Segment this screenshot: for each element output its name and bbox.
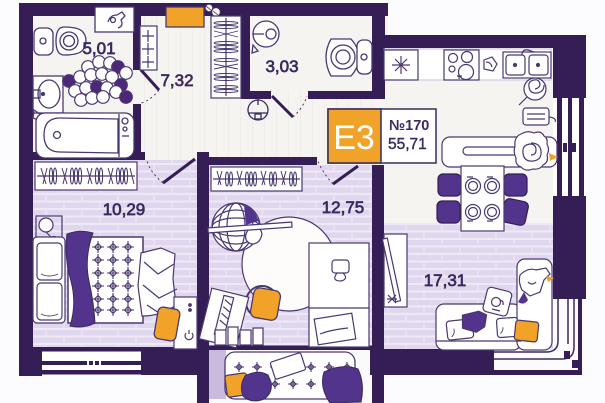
- svg-text:7,32: 7,32: [160, 71, 193, 90]
- svg-text:17,31: 17,31: [424, 271, 467, 290]
- svg-text:10,29: 10,29: [103, 200, 146, 219]
- svg-text:55,71: 55,71: [388, 136, 427, 153]
- svg-text:№170: №170: [389, 118, 429, 134]
- svg-text:12,75: 12,75: [322, 198, 365, 217]
- svg-text:E3: E3: [333, 119, 375, 157]
- svg-text:5,01: 5,01: [82, 39, 115, 58]
- svg-text:3,03: 3,03: [265, 57, 298, 76]
